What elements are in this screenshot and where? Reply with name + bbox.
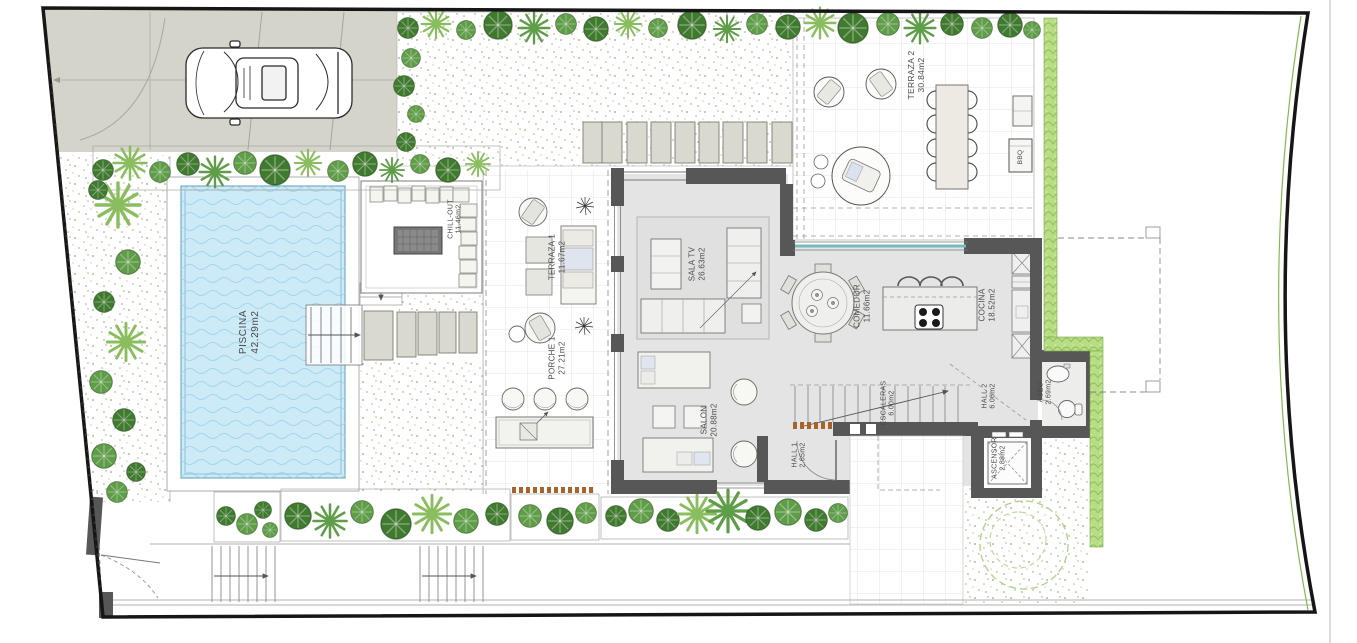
room-label-salon: SALON20.88m2 <box>699 403 718 436</box>
walkway-stairs-2 <box>420 546 483 602</box>
room-label-aseo: ASEO2.69m2 <box>1038 379 1055 404</box>
room-label-ascensor: ASCENSOR2.88m2 <box>992 437 1009 479</box>
kitchen-tall-cabinets <box>1012 252 1032 358</box>
room-label-sala-tv: SALA TV26.63m2 <box>687 247 706 281</box>
room-label-cocina: COCINA18.52m2 <box>977 288 996 321</box>
car-icon <box>186 41 352 125</box>
room-label-chill-out: CHILL-OUT11.46m2 <box>448 199 465 239</box>
walkway-stairs-1 <box>212 546 275 602</box>
floor-plan: PISCINA42.29m2 CHILL-OUT11.46m2 TERRAZA … <box>0 0 1357 643</box>
room-label-hall2: HALL 26.06m2 <box>982 383 999 408</box>
room-label-hall1: HALL 12.65m2 <box>792 442 809 467</box>
room-label-terraza1: TERRAZA 111.67m2 <box>547 234 566 280</box>
walkway-lines <box>108 544 1312 605</box>
room-label-terraza2: TERRAZA 230.84m2 <box>906 51 926 100</box>
room-label-porche1: PORCHE 127.21m2 <box>547 336 566 379</box>
room-label-comedor: COMEDOR11.66m2 <box>852 284 871 328</box>
floor-plan-drawing <box>0 0 1357 643</box>
pool-loungers <box>364 311 477 360</box>
room-label-escaleras: ESCALERAS6.00m2 <box>881 381 898 426</box>
firepit-table <box>394 227 442 254</box>
room-label-piscina: PISCINA42.29m2 <box>238 310 262 354</box>
label-bbq: BBQ <box>1017 150 1025 165</box>
south-patio-tiles <box>850 436 963 604</box>
pool-steps <box>306 305 362 365</box>
top-loungers <box>583 122 792 163</box>
porche-furniture <box>496 388 593 448</box>
